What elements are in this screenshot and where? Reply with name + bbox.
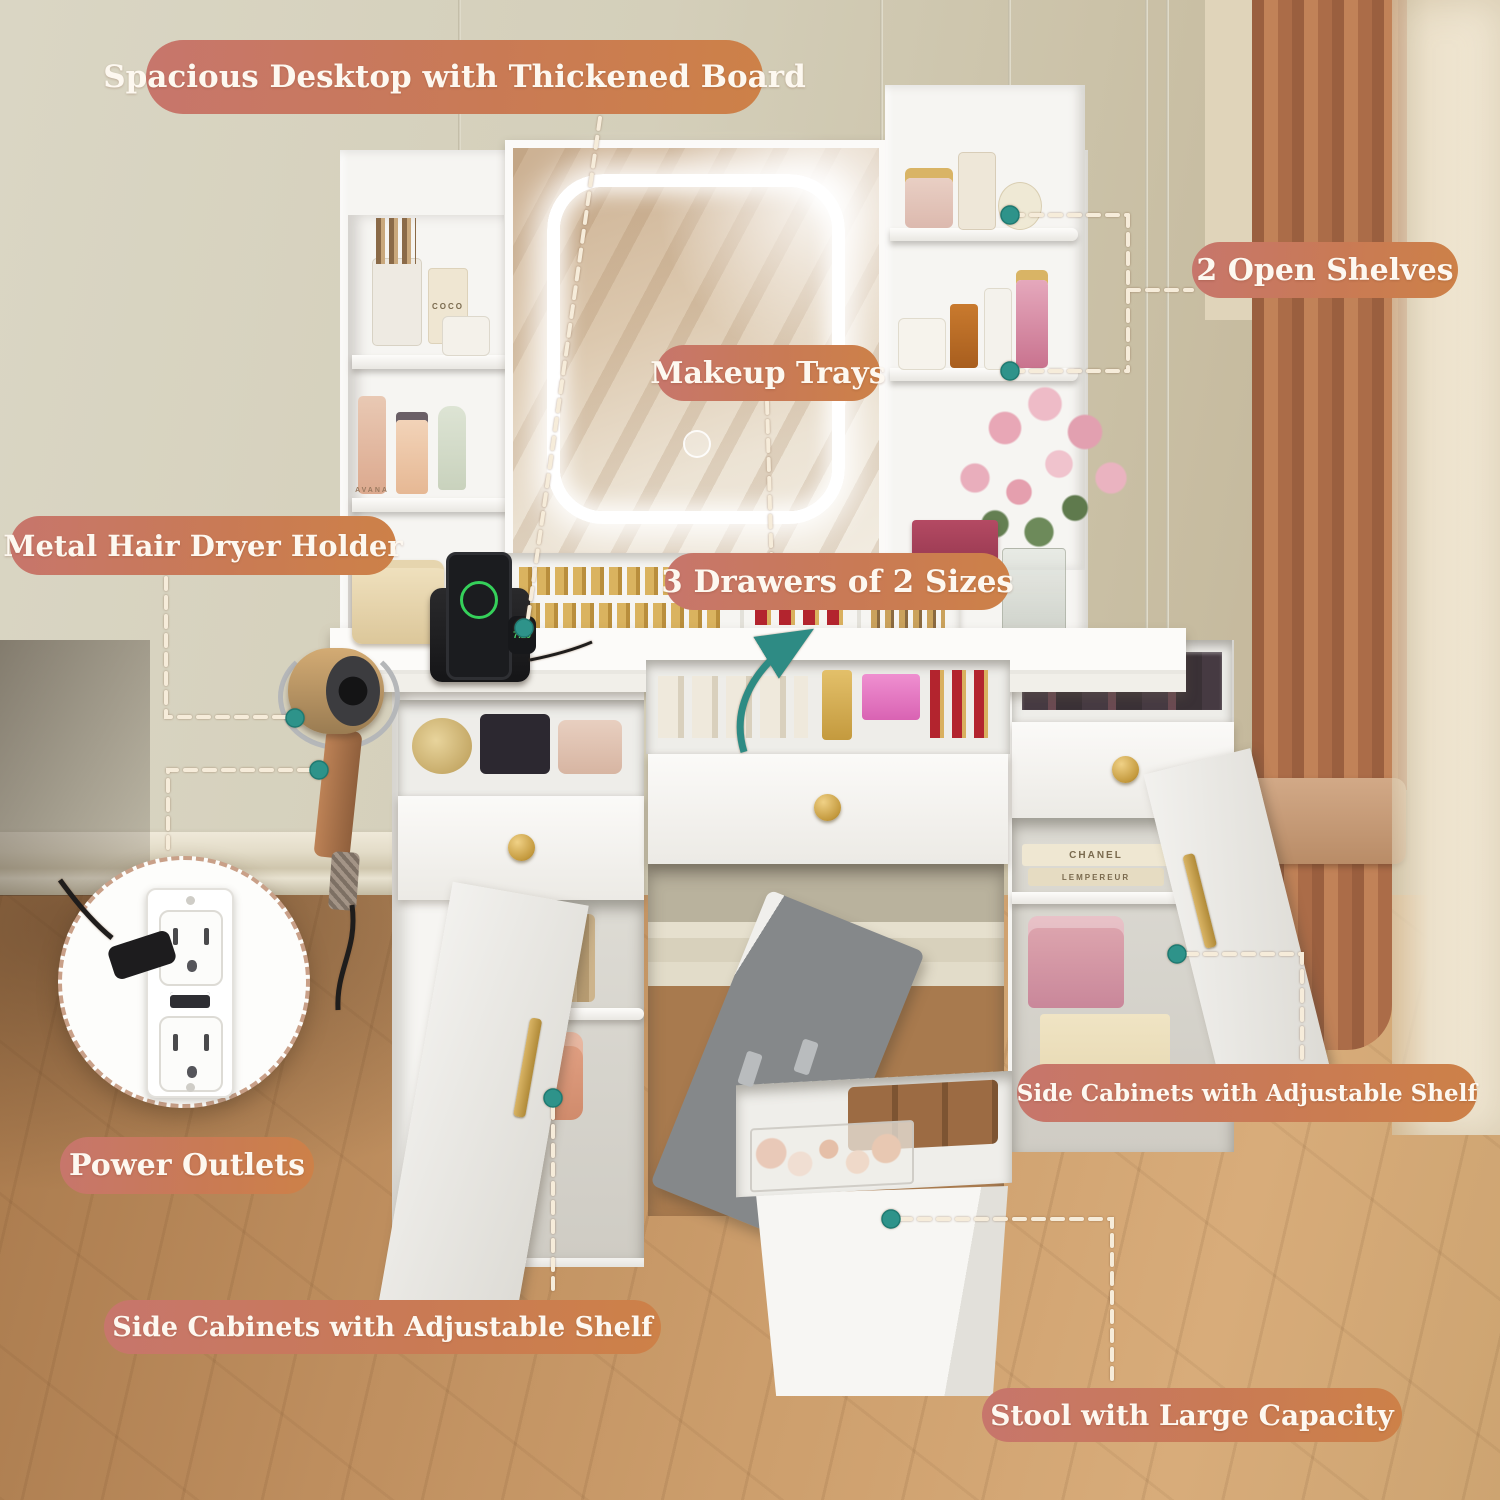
callout-label: 3 Drawers of 2 Sizes	[661, 564, 1014, 600]
foundation-bottle	[396, 420, 428, 494]
drawer-knob[interactable]	[508, 834, 535, 861]
callout-label: Side Cabinets with Adjustable Shelf	[112, 1312, 653, 1343]
callout-three-drawers: 3 Drawers of 2 Sizes	[665, 553, 1010, 610]
product-infographic: COCO AVANA 7:29	[0, 0, 1500, 1500]
clear-organizer-trays	[750, 1120, 914, 1193]
plate-screw	[186, 896, 195, 905]
curtain-drape	[1252, 0, 1407, 790]
pink-hat-box	[1028, 916, 1124, 1008]
ground-hole	[187, 960, 197, 972]
brush-cup	[372, 258, 422, 346]
outlet-socket-bottom[interactable]	[159, 1016, 223, 1092]
wall-panel-groove	[880, 0, 883, 140]
plate-screw	[186, 1083, 195, 1092]
gold-bottle	[822, 670, 852, 740]
callout-label: Side Cabinets with Adjustable Shelf	[1017, 1080, 1477, 1107]
callout-hair-dryer-holder: Metal Hair Dryer Holder	[10, 516, 396, 575]
cosmetic-tube	[438, 406, 466, 490]
under-desk-shadow	[0, 640, 150, 896]
cream-jar	[898, 318, 946, 370]
callout-side-cabinets-right: Side Cabinets with Adjustable Shelf	[1017, 1064, 1477, 1122]
book-spine: LEMPEREUR	[1062, 873, 1130, 882]
red-lipsticks-in-drawer	[930, 670, 996, 738]
left-drawer-front[interactable]	[398, 796, 644, 900]
shelf-board	[352, 355, 512, 369]
perfume-bottle	[958, 152, 996, 230]
smartphone[interactable]	[446, 552, 512, 680]
callout-power-outlets: Power Outlets	[60, 1137, 314, 1194]
ground-hole	[187, 1066, 197, 1078]
jars-in-drawer	[658, 676, 808, 738]
hair-dryer-face	[326, 656, 380, 726]
hair-dryer-filter	[328, 851, 360, 911]
callout-label: 2 Open Shelves	[1196, 253, 1453, 288]
callout-label: Stool with Large Capacity	[990, 1399, 1393, 1432]
drawer-knob[interactable]	[1112, 756, 1139, 783]
pump-bottle	[984, 288, 1012, 370]
perfume-bottle-label: COCO	[432, 302, 464, 311]
usb-port[interactable]	[170, 992, 210, 1008]
hair-dryer-head	[288, 648, 384, 734]
callout-label: Spacious Desktop with Thickened Board	[103, 59, 806, 95]
wall-panel-groove	[1008, 0, 1011, 85]
shelf-board	[352, 498, 522, 512]
power-outlet-magnifier	[58, 856, 310, 1108]
book-spine: CHANEL	[1069, 850, 1123, 861]
door-handle[interactable]	[513, 1017, 542, 1118]
black-palette	[480, 714, 550, 774]
gold-compact	[412, 718, 472, 774]
center-drawer-front[interactable]	[648, 754, 1008, 864]
pink-perfume-bottle	[1016, 280, 1048, 368]
makeup-brushes	[376, 218, 416, 264]
curtain-sheer	[1392, 0, 1500, 1135]
drawer-knob[interactable]	[814, 794, 841, 821]
center-drawer-open[interactable]	[646, 660, 1010, 754]
stool-storage-interior	[736, 1071, 1012, 1197]
mirror-touch-control[interactable]	[683, 430, 711, 458]
stool-body[interactable]	[756, 1186, 1008, 1396]
callout-side-cabinets-left: Side Cabinets with Adjustable Shelf	[104, 1300, 661, 1354]
gold-lid-jar	[905, 178, 953, 228]
amber-dropper-bottle	[950, 304, 978, 368]
left-drawer-open[interactable]	[398, 700, 644, 796]
callout-label: Metal Hair Dryer Holder	[3, 529, 402, 563]
callout-label: Power Outlets	[69, 1148, 305, 1183]
callout-spacious-desktop: Spacious Desktop with Thickened Board	[146, 40, 763, 114]
callout-stool: Stool with Large Capacity	[982, 1388, 1402, 1442]
door-handle[interactable]	[1182, 853, 1217, 949]
cream-jar	[442, 316, 490, 356]
spray-bottle-label: AVANA	[355, 487, 389, 494]
charging-ring-icon	[460, 581, 498, 619]
callout-label: Makeup Trays	[650, 356, 885, 391]
outlet-wall-plate	[146, 888, 234, 1098]
round-glass-jar	[998, 182, 1042, 230]
callout-makeup-trays: Makeup Trays	[656, 345, 880, 401]
pink-box	[862, 674, 920, 720]
smartwatch-time: 7:29	[513, 630, 531, 640]
callout-open-shelves: 2 Open Shelves	[1192, 242, 1458, 298]
cosmetic-jar	[558, 720, 622, 774]
